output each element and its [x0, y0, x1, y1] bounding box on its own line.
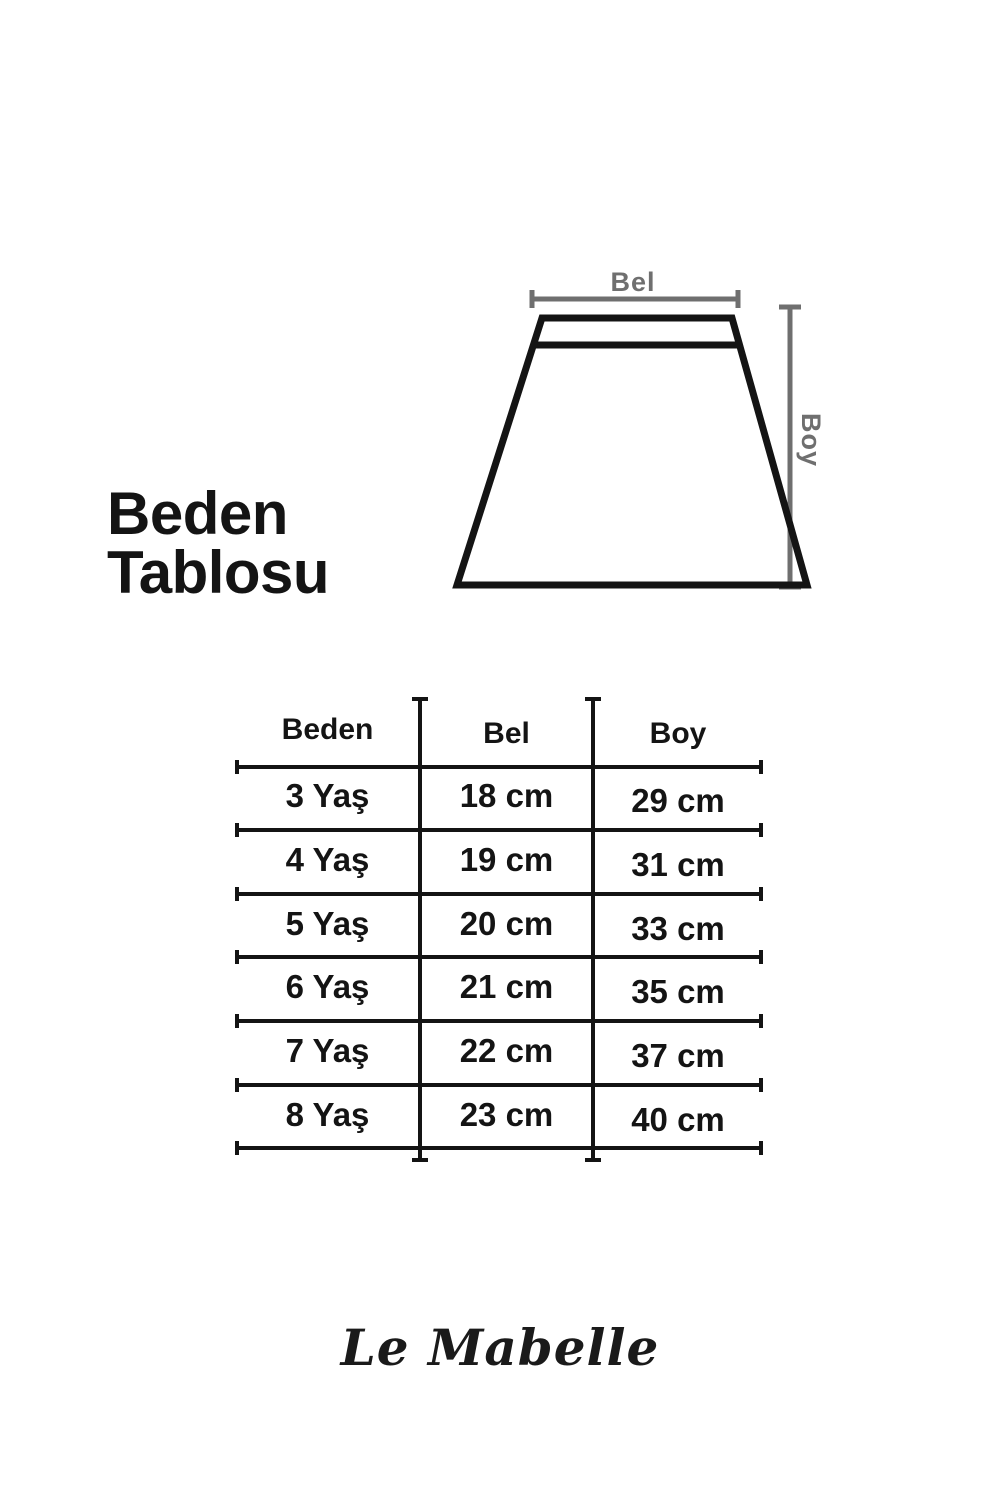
- cell-waist: 18 cm: [420, 767, 593, 828]
- brand-logo: Le Mabelle: [0, 1318, 1000, 1377]
- table-row: 3 Yaş 18 cm 29 cm: [235, 767, 763, 828]
- size-table: Beden Bel Boy 3 Yaş 18 cm 29 cm 4 Yaş 19…: [235, 695, 763, 1170]
- cell-size: 3 Yaş: [235, 767, 420, 828]
- cell-waist: 22 cm: [420, 1023, 593, 1083]
- skirt-outline: [457, 318, 807, 585]
- cell-length: 31 cm: [593, 832, 763, 892]
- cell-length: 37 cm: [593, 1023, 763, 1083]
- column-header-size: Beden: [235, 695, 420, 765]
- table-row: 4 Yaş 19 cm 31 cm: [235, 832, 763, 892]
- cell-size: 4 Yaş: [235, 832, 420, 892]
- cell-length: 33 cm: [593, 896, 763, 955]
- table-header-row: Beden Bel Boy: [235, 695, 763, 765]
- size-chart-page: Bel Boy Beden Tablosu: [0, 0, 1000, 1500]
- page-title-line1: Beden: [107, 484, 329, 543]
- skirt-diagram: Bel Boy: [440, 260, 840, 600]
- cell-length: 40 cm: [593, 1087, 763, 1146]
- cell-size: 6 Yaş: [235, 959, 420, 1019]
- waist-dimension-label: Bel: [610, 267, 655, 297]
- column-header-waist: Bel: [420, 695, 593, 765]
- cell-size: 7 Yaş: [235, 1023, 420, 1083]
- table-row: 7 Yaş 22 cm 37 cm: [235, 1023, 763, 1083]
- cell-waist: 21 cm: [420, 959, 593, 1019]
- table-horizontal-rule: [235, 1146, 763, 1150]
- cell-size: 8 Yaş: [235, 1087, 420, 1146]
- table-row: 6 Yaş 21 cm 35 cm: [235, 959, 763, 1019]
- cell-waist: 23 cm: [420, 1087, 593, 1146]
- cell-size: 5 Yaş: [235, 896, 420, 955]
- cell-waist: 20 cm: [420, 896, 593, 955]
- table-row: 5 Yaş 20 cm 33 cm: [235, 896, 763, 955]
- cell-waist: 19 cm: [420, 832, 593, 892]
- length-dimension-label: Boy: [796, 413, 826, 467]
- cell-length: 29 cm: [593, 767, 763, 828]
- table-row: 8 Yaş 23 cm 40 cm: [235, 1087, 763, 1146]
- column-header-length: Boy: [593, 695, 763, 765]
- cell-length: 35 cm: [593, 959, 763, 1019]
- page-title: Beden Tablosu: [107, 484, 329, 602]
- page-title-line2: Tablosu: [107, 543, 329, 602]
